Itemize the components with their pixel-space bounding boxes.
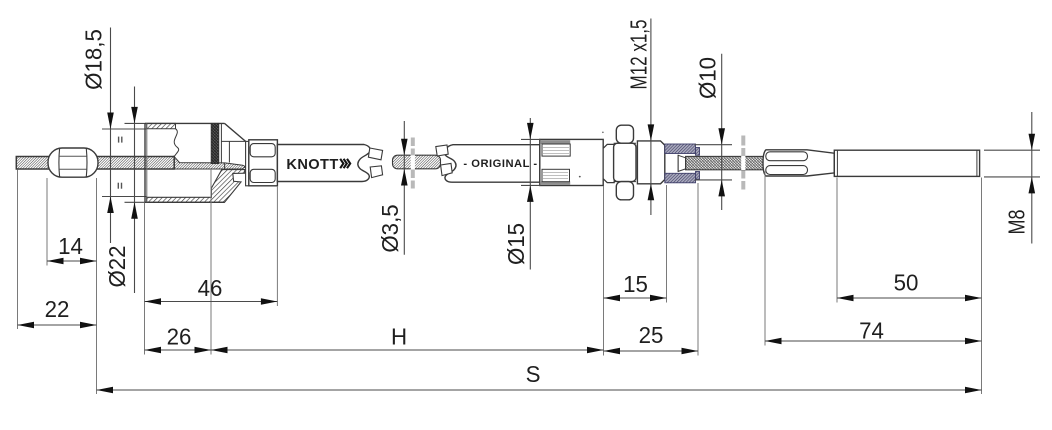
svg-text:Ø18,5: Ø18,5 bbox=[80, 29, 106, 90]
svg-text:22: 22 bbox=[45, 295, 70, 321]
svg-text:15: 15 bbox=[623, 270, 648, 296]
svg-text:M12 x1,5: M12 x1,5 bbox=[627, 20, 652, 90]
svg-text:M8: M8 bbox=[1004, 210, 1030, 235]
svg-text:H: H bbox=[391, 323, 407, 349]
svg-text:74: 74 bbox=[859, 317, 884, 343]
svg-text:25: 25 bbox=[639, 321, 664, 347]
svg-text:- ORIGINAL -: - ORIGINAL - bbox=[463, 158, 537, 170]
svg-text:Ø10: Ø10 bbox=[694, 57, 720, 99]
svg-text:26: 26 bbox=[167, 323, 192, 349]
svg-text:46: 46 bbox=[198, 274, 223, 300]
svg-text:Ø3,5: Ø3,5 bbox=[376, 204, 402, 252]
svg-text:S: S bbox=[526, 360, 541, 386]
svg-text:KNOTT: KNOTT bbox=[286, 157, 338, 173]
svg-text:Ø15: Ø15 bbox=[502, 223, 528, 265]
svg-text:50: 50 bbox=[894, 269, 919, 295]
svg-text:14: 14 bbox=[58, 232, 83, 258]
svg-text:Ø22: Ø22 bbox=[103, 245, 129, 287]
